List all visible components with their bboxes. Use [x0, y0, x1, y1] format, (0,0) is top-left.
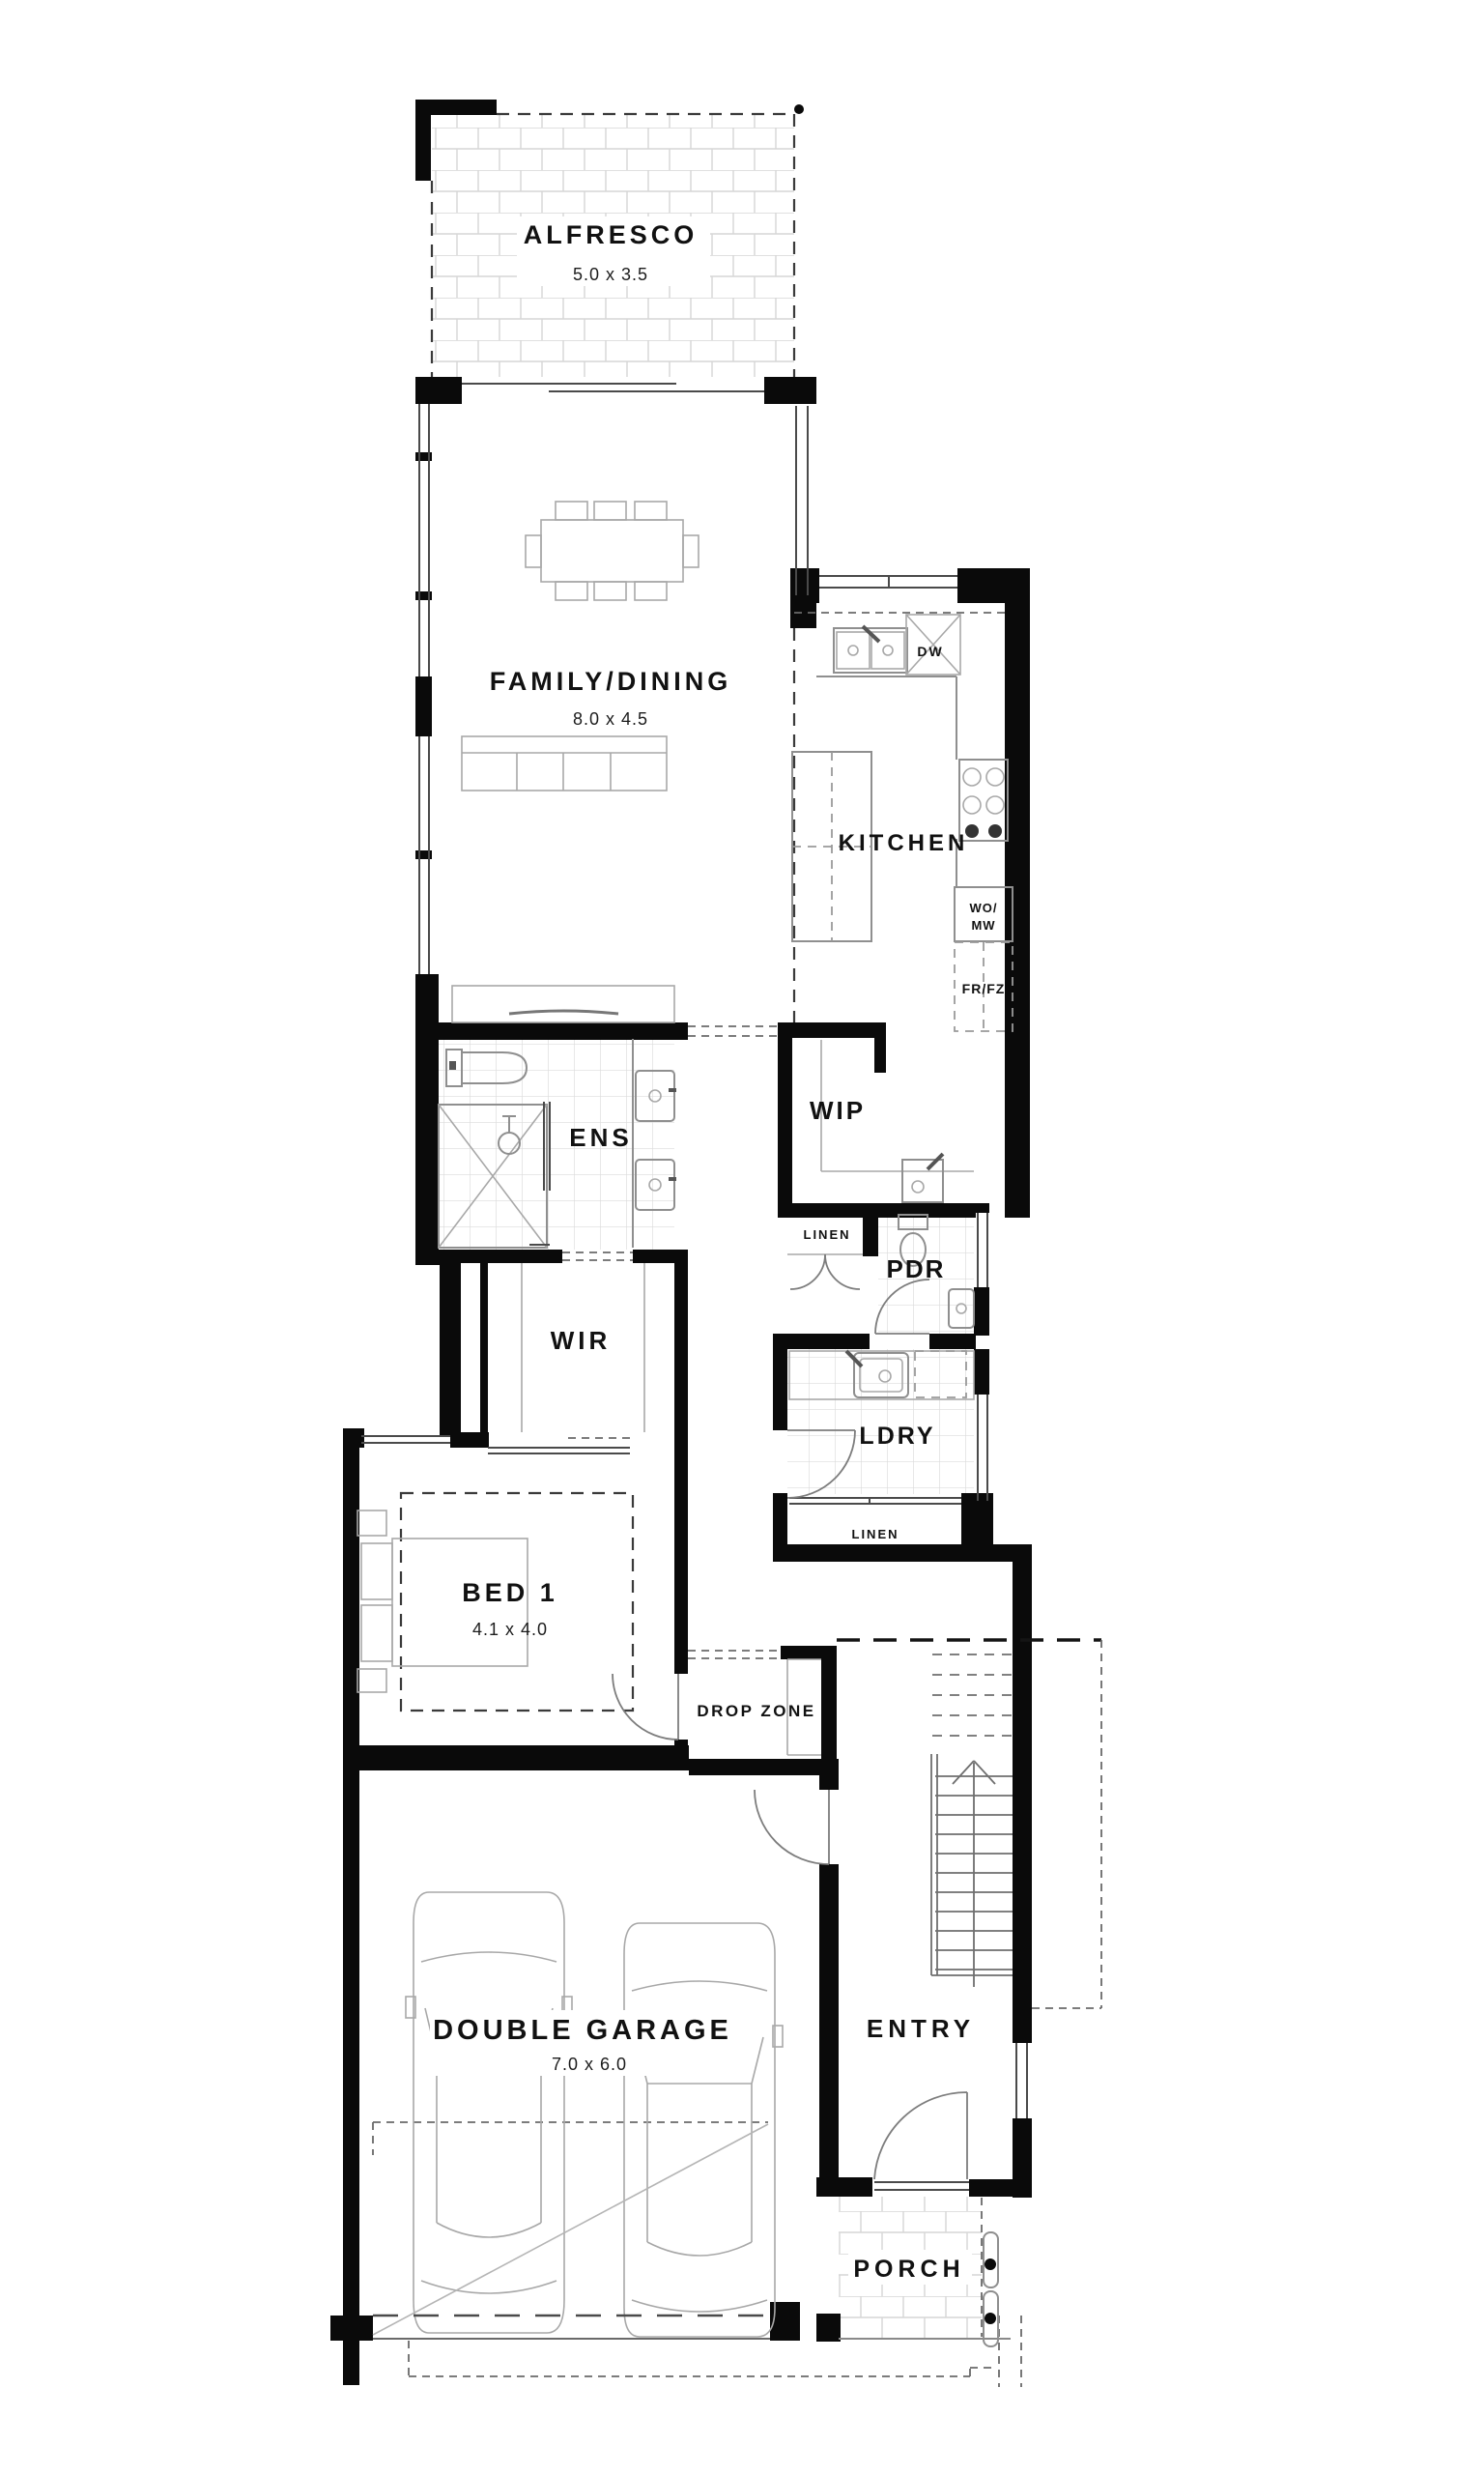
bed1-door [613, 1674, 678, 1740]
family-dining-dim: 8.0 x 4.5 [573, 709, 648, 729]
ldry-tiles [787, 1349, 974, 1494]
ldry-label: LDRY [859, 1423, 935, 1450]
pdr-window [978, 1213, 987, 1287]
front-door-sill [874, 2182, 969, 2190]
dishwasher-label: DW [917, 644, 943, 659]
floor-plan: ALFRESCO 5.0 x 3.5 FAMILY/DINING 8.0 x 4… [0, 0, 1484, 2474]
garage-entry-door [755, 1790, 829, 1864]
porch-label: PORCH [853, 2256, 964, 2283]
doors [755, 1790, 967, 2179]
staircase [931, 1654, 1013, 1987]
wip-sink-icon [902, 1154, 943, 1202]
alfresco-dim: 5.0 x 3.5 [573, 265, 648, 284]
floor-plan-page: ALFRESCO 5.0 x 3.5 FAMILY/DINING 8.0 x 4… [0, 0, 1484, 2474]
linen-hall-label: LINEN [804, 1227, 851, 1242]
oven-microwave-label-1: WO/ [970, 901, 998, 915]
bed1-label: BED 1 [462, 1578, 558, 1607]
alfresco-sliding-door [462, 384, 764, 391]
dining-table [526, 502, 699, 600]
linen-hall-doors [787, 1254, 863, 1289]
cooktop-icon [959, 760, 1008, 841]
oven-microwave-label-2: MW [971, 918, 995, 933]
linen-sliders [789, 1498, 961, 1504]
bed1-dim: 4.1 x 4.0 [472, 1620, 548, 1639]
pdr-label: PDR [887, 1254, 946, 1283]
garage-label: DOUBLE GARAGE [433, 2015, 732, 2046]
garage-contents [373, 1892, 783, 2339]
entry-window [1016, 2043, 1027, 2118]
bed1-window [361, 1436, 450, 1443]
kitchen-label: KITCHEN [839, 830, 969, 856]
ens-tiles [439, 1037, 674, 1250]
family-left-window-upper [419, 404, 429, 676]
ens-opening [562, 1252, 633, 1260]
linen-ldry-label: LINEN [852, 1527, 899, 1541]
driveway-diagonal [373, 2124, 768, 2335]
ens-label: ENS [569, 1123, 632, 1152]
kitchen-window [819, 576, 957, 588]
garage-apron [373, 2122, 768, 2155]
family-dining-label: FAMILY/DINING [490, 667, 732, 696]
alfresco-post [794, 104, 804, 114]
front-door [874, 2092, 967, 2179]
upper-floor-overhang [1032, 1640, 1101, 2008]
fridge-freezer-label: FR/FZ [962, 981, 1006, 996]
family-furniture [452, 502, 699, 1022]
kitchen-sink-icon [834, 626, 907, 673]
bedside-table [357, 1510, 386, 1536]
family-right-window [796, 406, 808, 595]
bedside-table [357, 1669, 386, 1692]
tv-cabinet [452, 986, 674, 1022]
kitchen-fixtures [792, 615, 1013, 1031]
alfresco-label: ALFRESCO [524, 220, 699, 249]
wip-label: WIP [810, 1096, 866, 1125]
car-icon [406, 1892, 572, 2333]
ldry-window [978, 1395, 987, 1501]
garage-dim: 7.0 x 6.0 [552, 2055, 627, 2074]
entry-label: ENTRY [867, 2014, 975, 2043]
wir-label: WIR [551, 1326, 612, 1355]
hall-opening-top [688, 1026, 778, 1036]
wir-robe-sliders [488, 1448, 630, 1453]
drop-zone-label: DROP ZONE [697, 1702, 815, 1720]
hall-opening-bottom [688, 1651, 779, 1658]
sofa [462, 736, 667, 791]
